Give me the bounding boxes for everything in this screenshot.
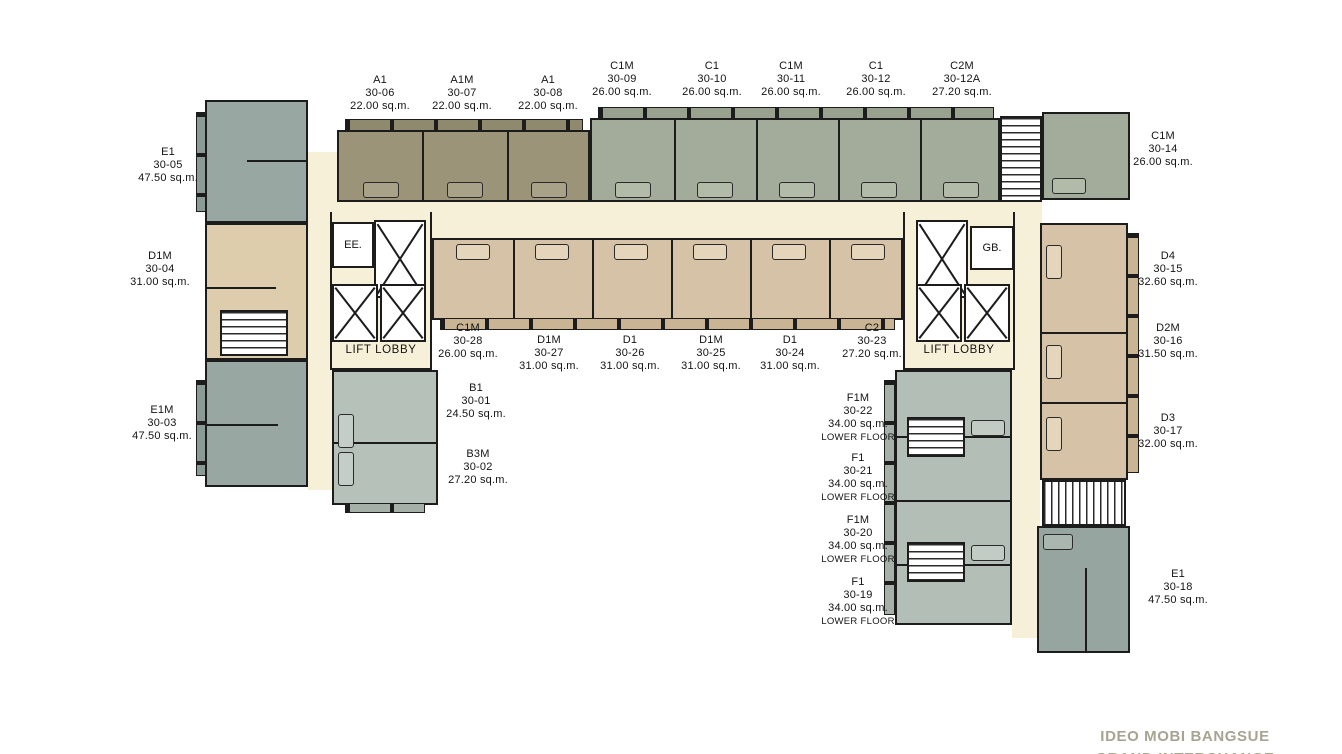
ee-room: EE. [332,222,374,268]
wall [207,424,278,426]
bathroom-pod [1043,534,1073,550]
bathroom-pod [1046,417,1062,451]
floor-plan: EE. LIFT LOBBY GB. LIFT LOBBY [0,0,1342,754]
wall [1042,402,1126,404]
bathroom-pod [615,182,651,198]
unit-label-30-27: D1M30-2731.00 sq.m. [504,334,594,374]
unit-block-c1m-14 [1042,112,1130,200]
bathroom-pod [971,545,1005,561]
bathroom-pod [697,182,733,198]
bathroom-pod [851,244,885,260]
bathroom-pod [363,182,399,198]
lift-lobby-right-label: LIFT LOBBY [903,344,1015,356]
unit-label-30-26: D130-2631.00 sq.m. [585,334,675,374]
unit-label-30-06: A130-0622.00 sq.m. [335,74,425,114]
unit-label-30-12: C130-1226.00 sq.m. [831,60,921,100]
wall [1085,568,1087,651]
wall [247,160,306,162]
wall [592,240,594,318]
unit-label-30-28: C1M30-2826.00 sq.m. [423,322,513,362]
gb-room: GB. [970,226,1014,270]
unit-label-30-05: E130-0547.50 sq.m. [123,146,213,186]
unit-block-e1m-03 [205,360,308,487]
wall [920,120,922,200]
bathroom-pod [447,182,483,198]
bathroom-pod [693,244,727,260]
project-title: IDEO MOBI BANGSUE GRAND INTERCHANGE [1060,726,1310,754]
bathroom-pod [338,452,354,486]
lift-shaft [380,284,426,342]
unit-label-30-02: B3M30-0227.20 sq.m. [433,448,523,488]
lift-shaft [332,284,378,342]
unit-label-30-22: F1M30-2234.00 sq.m.LOWER FLOOR [803,392,913,443]
bathroom-pod [1046,345,1062,379]
bathroom-pod [772,244,806,260]
bathroom-pod [1052,178,1086,194]
wall [756,120,758,200]
wall [671,240,673,318]
lift-shaft [916,284,962,342]
bathroom-pod [943,182,979,198]
unit-block-d1-row [432,238,903,320]
lift-lobby-left-label: LIFT LOBBY [330,344,432,356]
wall [507,132,509,200]
corridor-right-vertical [1012,238,1040,638]
unit-label-30-17: D330-1732.00 sq.m. [1123,412,1213,452]
wall [674,120,676,200]
duplex-stair [907,417,965,457]
unit-label-30-21: F130-2134.00 sq.m.LOWER FLOOR [803,452,913,503]
unit-label-30-23: C230-2327.20 sq.m. [827,322,917,362]
unit-block-c-row [590,118,1000,202]
unit-label-30-11: C1M30-1126.00 sq.m. [746,60,836,100]
stairwell-left [220,310,288,356]
wall [750,240,752,318]
unit-block-a1-row [337,130,590,202]
bathroom-pod [338,414,354,448]
wall [513,240,515,318]
unit-label-30-12A: C2M30-12A27.20 sq.m. [917,60,1007,100]
wall [829,240,831,318]
wall [897,500,1010,502]
unit-label-30-14: C1M30-1426.00 sq.m. [1118,130,1208,170]
wall [1042,332,1126,334]
duplex-stair [907,542,965,582]
unit-label-30-07: A1M30-0722.00 sq.m. [417,74,507,114]
wall [422,132,424,200]
unit-block-e1-05 [205,100,308,223]
unit-block-e1-18 [1037,526,1130,653]
unit-label-30-15: D430-1532.60 sq.m. [1123,250,1213,290]
unit-label-30-20: F1M30-2034.00 sq.m.LOWER FLOOR [803,514,913,565]
unit-block-d-right-wing [1040,223,1128,480]
bathroom-pod [779,182,815,198]
project-title-line2: GRAND INTERCHANGE [1060,748,1310,754]
unit-label-30-10: C130-1026.00 sq.m. [667,60,757,100]
unit-label-30-16: D2M30-1631.50 sq.m. [1123,322,1213,362]
bathroom-pod [614,244,648,260]
lift-shaft [964,284,1010,342]
bathroom-pod [1046,245,1062,279]
unit-label-30-19: F130-1934.00 sq.m.LOWER FLOOR [803,576,913,627]
unit-label-30-25: D1M30-2531.00 sq.m. [666,334,756,374]
bathroom-pod [535,244,569,260]
unit-label-30-04: D1M30-0431.00 sq.m. [115,250,205,290]
wall [207,287,276,289]
unit-label-30-01: B130-0124.50 sq.m. [431,382,521,422]
stairwell-bottom-right [1042,480,1126,526]
bathroom-pod [456,244,490,260]
wall [838,120,840,200]
unit-label-30-18: E130-1847.50 sq.m. [1133,568,1223,608]
gb-room-label: GB. [983,242,1002,254]
ee-room-label: EE. [344,239,362,251]
bathroom-pod [971,420,1005,436]
bathroom-pod [531,182,567,198]
unit-label-30-24: D130-2431.00 sq.m. [745,334,835,374]
bathroom-pod [861,182,897,198]
project-title-line1: IDEO MOBI BANGSUE [1060,726,1310,748]
unit-block-b1-b3m [332,370,438,505]
balcony-strip-b [345,503,425,513]
stairwell-top-right [1000,116,1042,202]
unit-label-30-03: E1M30-0347.50 sq.m. [117,404,207,444]
unit-label-30-09: C1M30-0926.00 sq.m. [577,60,667,100]
